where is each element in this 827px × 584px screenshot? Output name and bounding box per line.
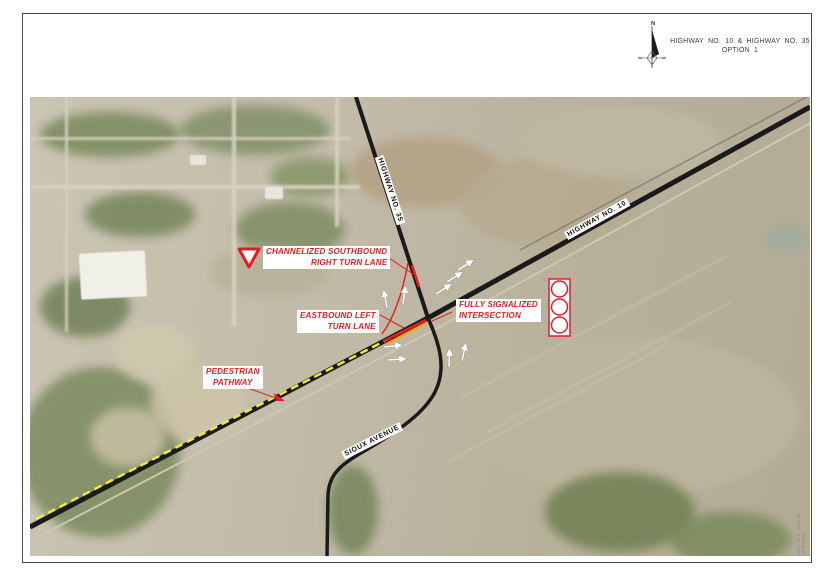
plan-sheet: N HIGHWAY NO. 10 & HIGHWAY NO. 35 OPTION…: [0, 0, 827, 584]
lane-arrow: [458, 342, 470, 362]
north-pennant: [652, 30, 659, 58]
callout-line: TURN LANE: [300, 322, 376, 333]
title-block: HIGHWAY NO. 10 & HIGHWAY NO. 35 OPTION 1: [665, 37, 815, 55]
yield-sign-icon: [239, 249, 259, 267]
lane-arrow: [445, 268, 465, 285]
callout-line: EASTBOUND LEFT: [300, 311, 376, 322]
railway-line: [520, 94, 812, 250]
lane-arrow: [434, 280, 454, 297]
callout-pedestrian-pathway: PEDESTRIAN PATHWAY: [203, 366, 263, 389]
left-turn-lane-orange: [386, 323, 426, 344]
plan-linework: [0, 0, 827, 584]
drawing-stamp: HWY 10 & HWY 35 - OPTION 1: [796, 492, 806, 556]
lane-arrow: [380, 289, 391, 309]
north-label: N: [651, 21, 655, 27]
north-arrow: N: [638, 16, 668, 74]
callout-channelized-right-turn: CHANNELIZED SOUTHBOUND RIGHT TURN LANE: [263, 246, 390, 269]
lane-arrow: [456, 256, 476, 273]
sheet-option: OPTION 1: [665, 46, 815, 55]
callout-line: FULLY SIGNALIZED: [459, 300, 538, 311]
callout-line: PATHWAY: [206, 378, 260, 389]
lane-arrow: [388, 355, 408, 364]
callout-line: CHANNELIZED SOUTHBOUND: [266, 247, 387, 258]
callout-line: INTERSECTION: [459, 311, 538, 322]
highway10-road: [30, 107, 810, 527]
callout-line: PEDESTRIAN: [206, 367, 260, 378]
callout-fully-signalized: FULLY SIGNALIZED INTERSECTION: [456, 299, 541, 322]
callout-eastbound-left-turn: EASTBOUND LEFT TURN LANE: [297, 310, 379, 333]
sheet-title: HIGHWAY NO. 10 & HIGHWAY NO. 35: [665, 37, 815, 46]
highway10-shoulder-line: [36, 120, 816, 538]
callout-line: RIGHT TURN LANE: [266, 258, 387, 269]
lane-arrow: [445, 348, 454, 367]
traffic-signal-icon: [549, 279, 570, 336]
